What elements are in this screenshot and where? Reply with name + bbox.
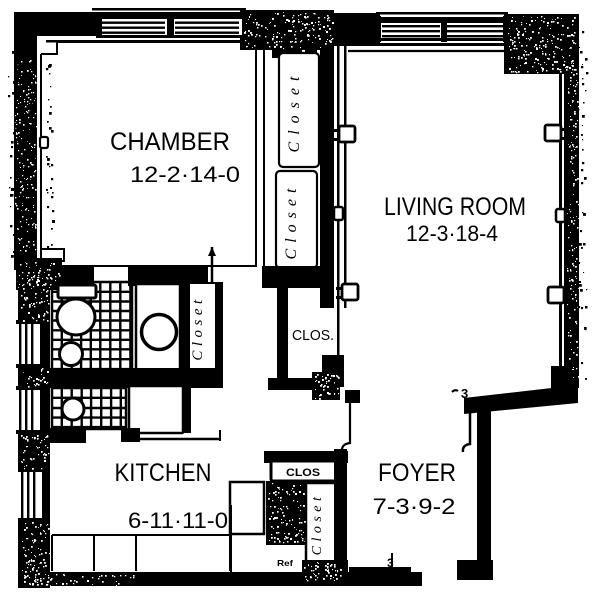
svg-text:CHAMBER: CHAMBER <box>110 128 230 156</box>
svg-text:12-2·14-0: 12-2·14-0 <box>130 162 240 187</box>
svg-text:CLOS: CLOS <box>286 467 320 479</box>
svg-text:12-3·18-4: 12-3·18-4 <box>406 221 498 246</box>
svg-text:Closet: Closet <box>286 70 303 153</box>
svg-text:3: 3 <box>461 386 468 401</box>
svg-text:KITCHEN: KITCHEN <box>115 459 212 487</box>
svg-text:Ref: Ref <box>277 558 293 568</box>
svg-text:Closet: Closet <box>190 295 206 360</box>
svg-text:Closet: Closet <box>310 493 325 556</box>
svg-text:FOYER: FOYER <box>378 459 456 487</box>
svg-text:6-11·11-0: 6-11·11-0 <box>128 508 228 533</box>
svg-text:7-3·9-2: 7-3·9-2 <box>373 494 456 519</box>
svg-text:LIVING ROOM: LIVING ROOM <box>384 193 526 221</box>
svg-text:Closet: Closet <box>283 183 300 260</box>
svg-text:CLOS.: CLOS. <box>292 327 334 344</box>
